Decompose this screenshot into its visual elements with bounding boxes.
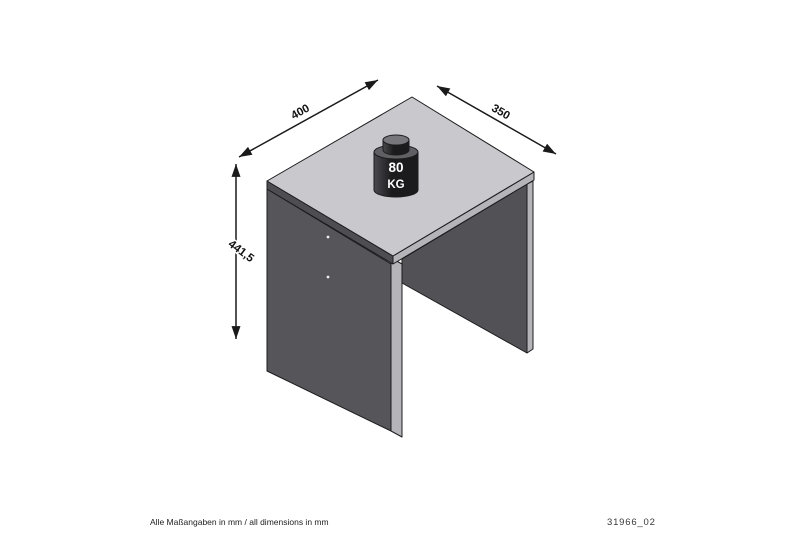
depth-dimension-label: 350 <box>489 102 512 122</box>
footer-units-note: Alle Maßangaben in mm / all dimensions i… <box>150 517 329 527</box>
left-panel-edge-strip <box>391 258 402 437</box>
footer-drawing-number: 31966_02 <box>607 517 656 528</box>
height-dimension-label: 441,5 <box>226 238 257 265</box>
drawing-canvas: 80 KG 400 350 441,5 Alle Maßangaben in m… <box>0 0 800 533</box>
technical-drawing-svg: 80 KG 400 350 441,5 Alle Maßangaben in m… <box>0 0 800 533</box>
weight-value-label: 80 <box>388 160 403 175</box>
weight-knob-top <box>383 135 409 145</box>
right-panel-edge-strip <box>527 181 533 353</box>
screw-hole-dot <box>327 236 330 239</box>
screw-hole-dot <box>327 276 330 279</box>
weight-unit-label: KG <box>387 179 404 191</box>
